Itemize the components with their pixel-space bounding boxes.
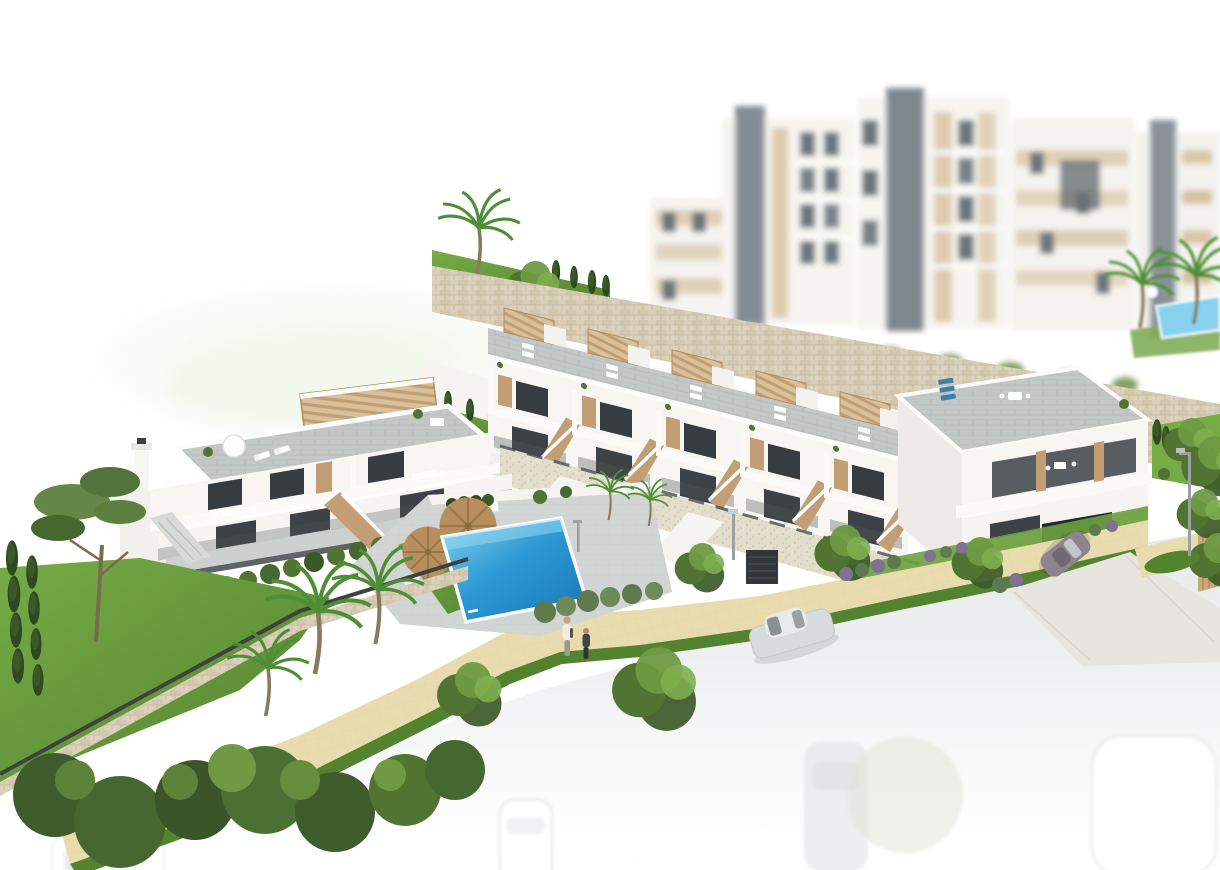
roof-umbrella bbox=[223, 435, 245, 457]
ghost-car bbox=[1092, 736, 1216, 870]
background-parasol bbox=[1146, 286, 1158, 298]
scene-render bbox=[0, 0, 1220, 870]
apartment-tower-b bbox=[722, 106, 854, 325]
render-canvas bbox=[0, 0, 1220, 870]
apartment-block-d bbox=[1012, 118, 1134, 330]
ghost-car bbox=[500, 800, 552, 870]
apartment-tower-c bbox=[858, 88, 1010, 331]
ghost-tree bbox=[847, 737, 963, 853]
entry-gate bbox=[746, 550, 778, 584]
